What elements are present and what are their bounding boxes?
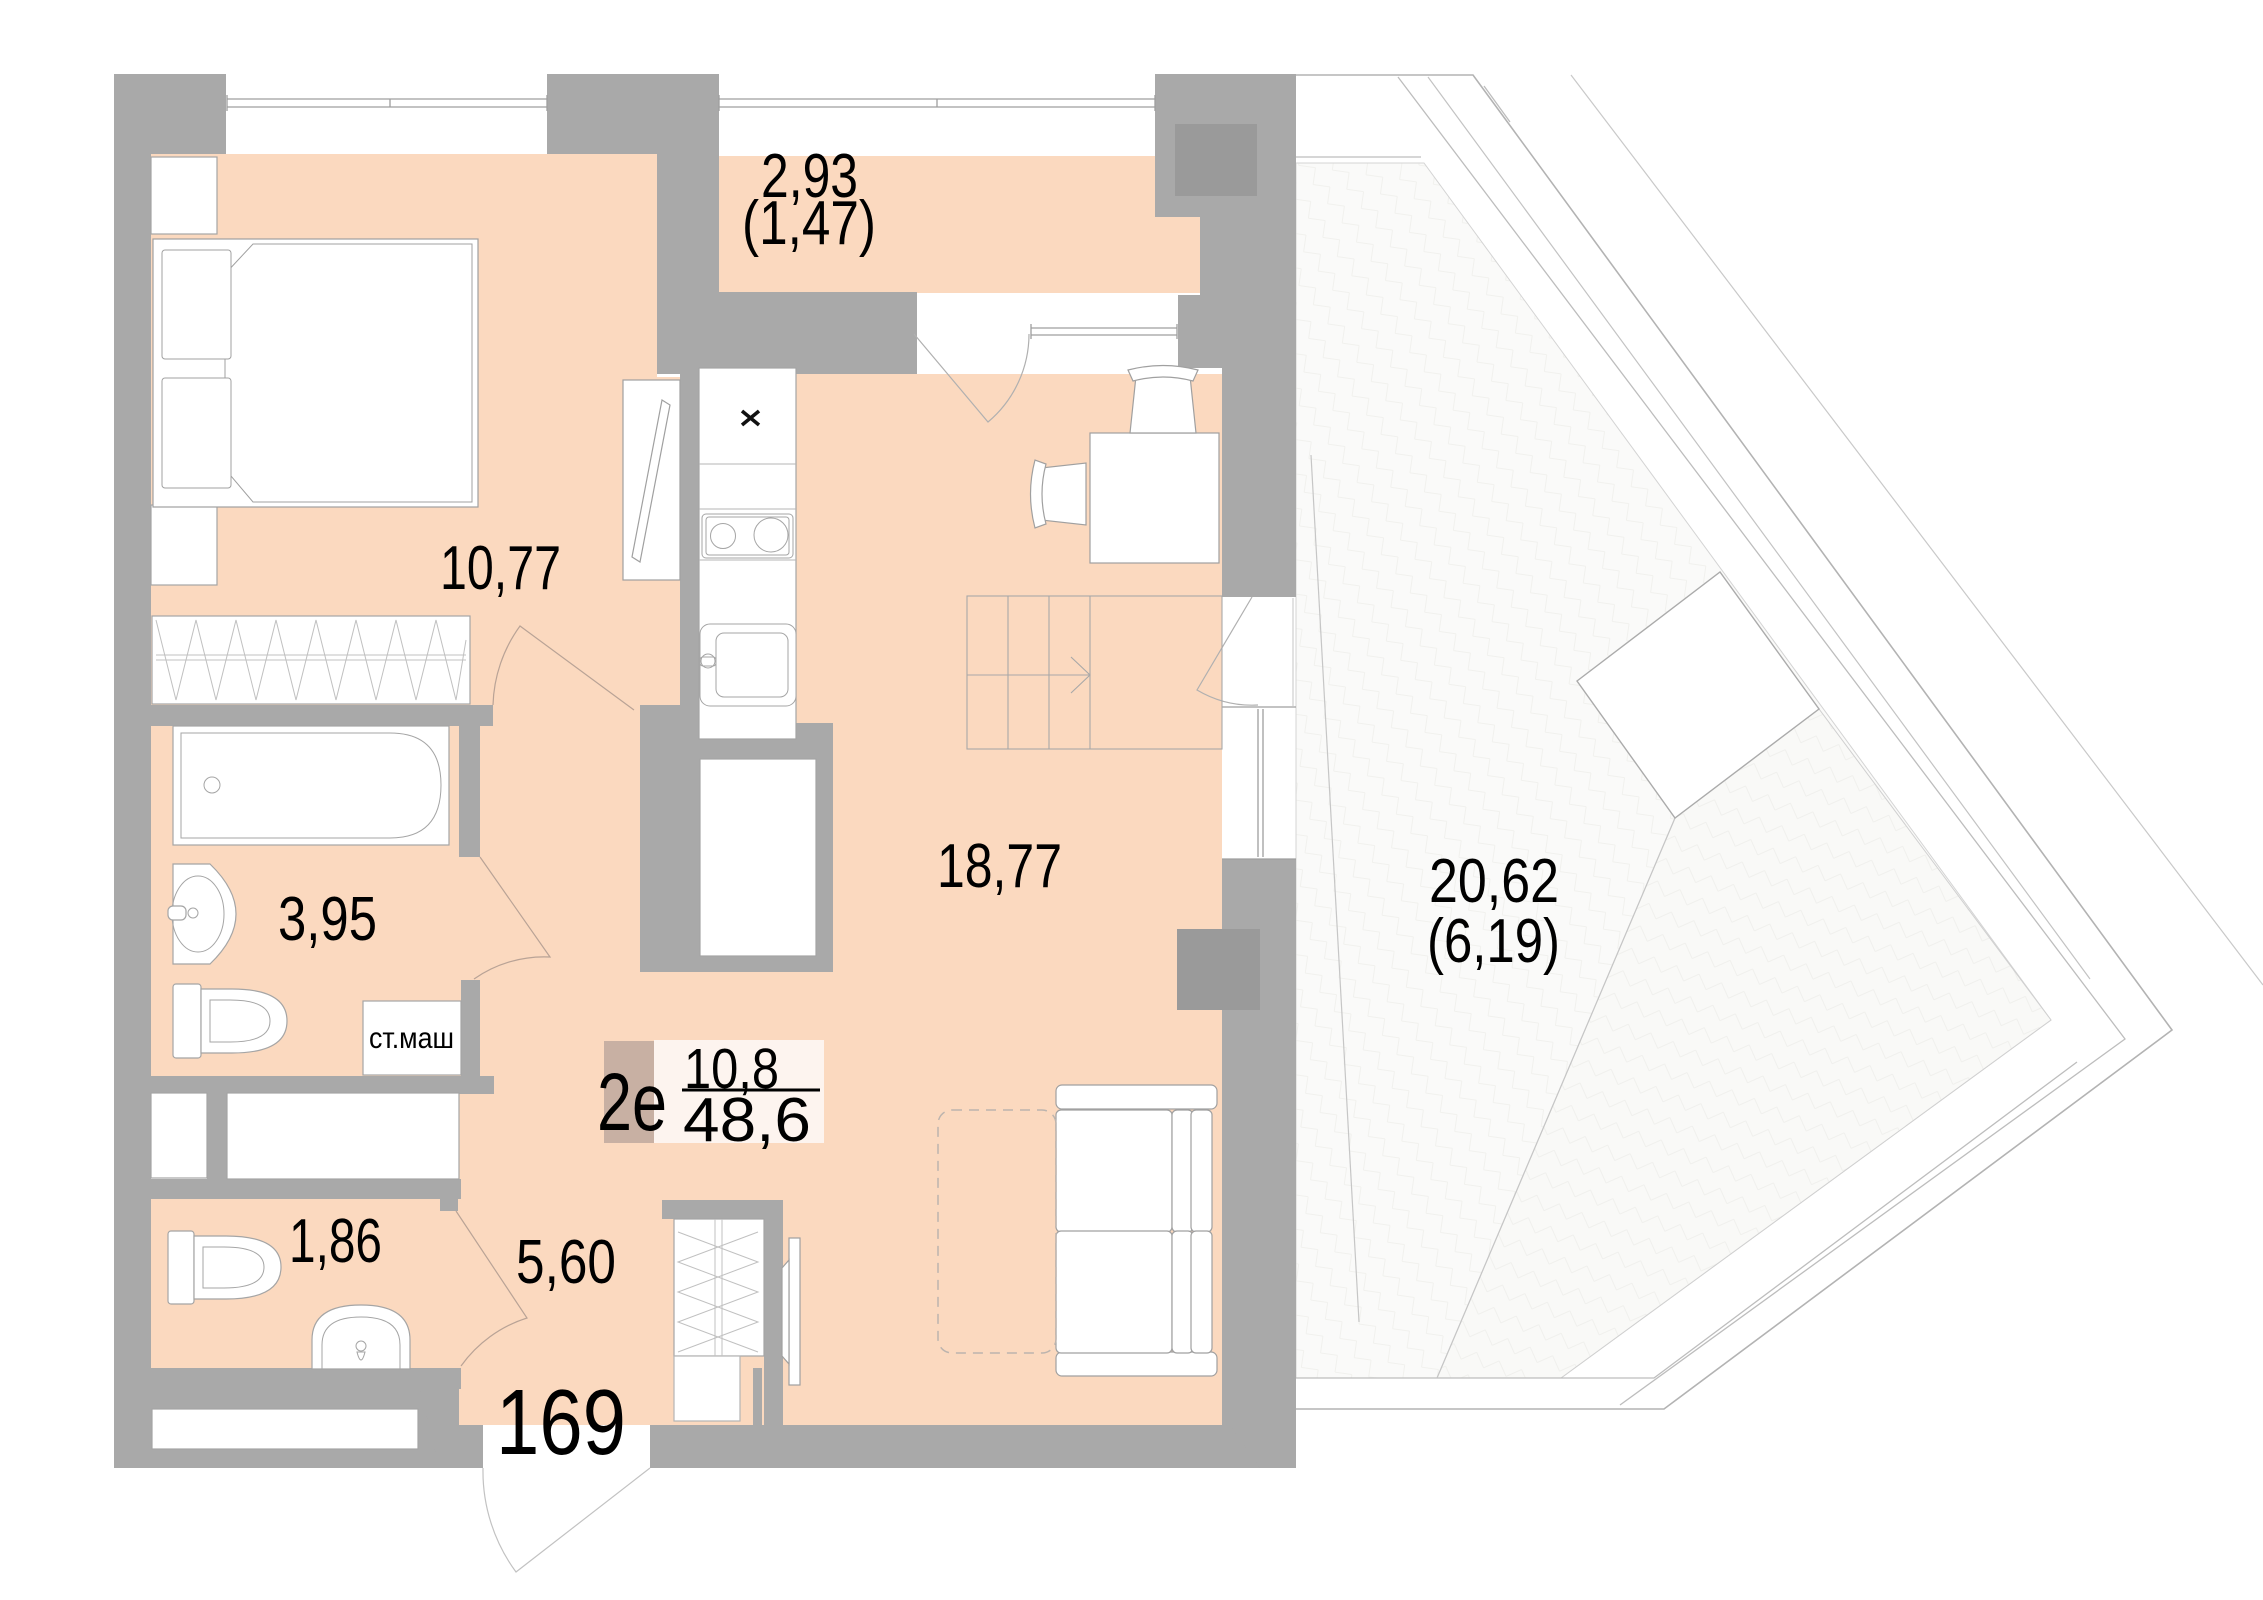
svg-text:1,86: 1,86	[289, 1207, 382, 1276]
svg-text:5,60: 5,60	[516, 1228, 616, 1297]
svg-text:20,62: 20,62	[1429, 847, 1559, 916]
svg-text:18,77: 18,77	[937, 832, 1062, 901]
svg-text:ст.маш: ст.маш	[369, 1022, 454, 1055]
svg-text:(6,19): (6,19)	[1427, 907, 1560, 976]
svg-text:2е: 2е	[597, 1057, 667, 1148]
svg-text:169: 169	[496, 1370, 626, 1474]
svg-text:10,77: 10,77	[440, 534, 561, 603]
svg-text:48,6: 48,6	[683, 1086, 811, 1155]
svg-text:(1,47): (1,47)	[742, 189, 876, 258]
svg-text:3,95: 3,95	[278, 885, 377, 954]
